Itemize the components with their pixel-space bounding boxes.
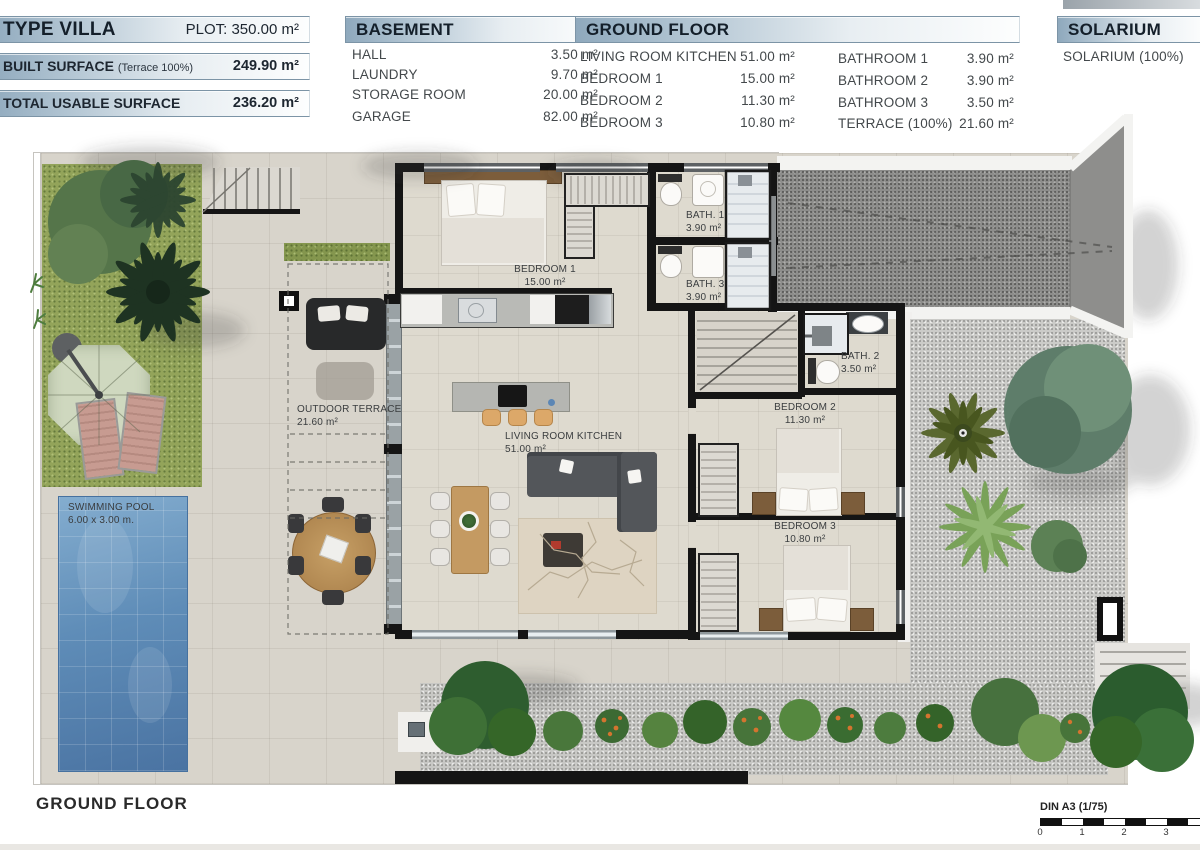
- patio-chair: [322, 497, 344, 512]
- basement-header-bar: BASEMENT: [345, 16, 603, 43]
- window-north-1: [424, 163, 540, 172]
- room-label-pool: SWIMMING POOL6.00 x 3.00 m.: [68, 502, 155, 527]
- room-label-terrace: OUTDOOR TERRACE21.60 m²: [297, 404, 402, 429]
- bath2-sink: [852, 315, 884, 333]
- ground-floor-title: GROUND FLOOR: [586, 17, 729, 42]
- patio-chair: [322, 590, 344, 605]
- slider-post-bottom: [384, 624, 402, 634]
- ground-floor-row: BATHROOM 23.90 m²: [838, 73, 1014, 93]
- coffee-table: [543, 533, 583, 567]
- solarium-row: SOLARIUM (100%): [1063, 49, 1200, 69]
- dining-chair: [430, 548, 450, 566]
- room-label-living: LIVING ROOM KITCHEN51.00 m²: [505, 431, 622, 456]
- solarium-title: SOLARIUM: [1068, 17, 1161, 42]
- plot-value: PLOT: 350.00 m²: [186, 17, 299, 42]
- dining-chair: [490, 548, 510, 566]
- terrace-window-symbol: [279, 291, 299, 311]
- glass-door-living-2: [528, 630, 616, 639]
- ground-floor-row: TERRACE (100%)21.60 m²: [838, 116, 1014, 136]
- slider-post-mid: [384, 444, 402, 454]
- dining-chair: [490, 492, 510, 510]
- wall-baths-south: [647, 303, 905, 311]
- sofa-pillow: [627, 469, 642, 484]
- wall-west-upper: [395, 163, 403, 303]
- scale-tick: 3: [1160, 827, 1172, 838]
- scale-tick: 1: [1076, 827, 1088, 838]
- bed3-blanket: [784, 546, 848, 590]
- wall-bath2-west: [798, 311, 805, 397]
- window-north-3: [684, 163, 768, 172]
- ground-floor-header-bar: GROUND FLOOR: [575, 16, 1020, 43]
- ground-floor-row: BATHROOM 33.50 m²: [838, 95, 1014, 115]
- usable-surface-label: TOTAL USABLE SURFACE: [3, 91, 180, 116]
- hedge-strip: [284, 243, 390, 261]
- usable-surface-value: 236.20 m²: [233, 91, 299, 116]
- garage-door: [769, 196, 776, 276]
- sink-bowl: [468, 303, 484, 318]
- patio-chair: [288, 514, 304, 533]
- cropped-top-bar: [1063, 0, 1200, 9]
- window-box-symbol: [1097, 597, 1123, 641]
- garden-wall: [395, 771, 748, 784]
- outdoor-rug: [316, 362, 374, 400]
- scale-bar: [1040, 818, 1200, 826]
- basement-row: LAUNDRY9.70 m²: [352, 67, 598, 87]
- kitchen-oven: [555, 295, 589, 324]
- driveway-curb-top: [777, 156, 1072, 170]
- driveway: [777, 170, 1070, 307]
- patio-chair: [355, 514, 371, 533]
- room-label-bath1: BATH. 13.90 m²: [686, 210, 724, 235]
- toilet-1: [660, 182, 682, 206]
- plan-frame-bottom: [33, 784, 1128, 785]
- scale-tick: 0: [1034, 827, 1046, 838]
- bed2-pillow: [808, 487, 839, 512]
- patio-chair: [288, 556, 304, 575]
- room-label-bath2: BATH. 23.50 m²: [841, 351, 879, 376]
- bed2-pillow: [778, 487, 809, 512]
- dining-chair: [430, 492, 450, 510]
- window-east-1: [896, 487, 905, 517]
- page-edge-strip: [0, 844, 1200, 850]
- bed2-blanket: [777, 429, 839, 473]
- scale-tick: 2: [1118, 827, 1130, 838]
- outdoor-cushion: [345, 305, 368, 322]
- toilet-3: [660, 254, 682, 278]
- bar-stool: [508, 409, 527, 426]
- utility-box: [408, 722, 425, 737]
- built-surface-label: BUILT SURFACE: [3, 58, 114, 74]
- basement-row: STORAGE ROOM20.00 m²: [352, 87, 598, 107]
- sofa-pillow: [559, 459, 574, 474]
- room-label-bedroom3: BEDROOM 310.80 m²: [745, 521, 865, 546]
- built-surface-value: 249.90 m²: [233, 54, 299, 79]
- bed1-pillow: [476, 183, 506, 217]
- type-villa-title: TYPE VILLA: [3, 17, 116, 42]
- plan-frame-left-outer: [33, 152, 34, 785]
- bed1-blanket: [442, 218, 544, 263]
- floor-title: GROUND FLOOR: [36, 794, 188, 814]
- nightstand: [759, 608, 783, 631]
- room-label-bedroom2: BEDROOM 211.30 m²: [745, 402, 865, 427]
- basement-row: HALL3.50 m²: [352, 47, 598, 67]
- wall-stair-west: [688, 311, 695, 397]
- nightstand: [752, 492, 776, 515]
- bath2-toilet-tank: [808, 358, 816, 384]
- window-north-2: [556, 163, 648, 172]
- nightstand: [841, 492, 865, 515]
- basement-row: GARAGE82.00 m²: [352, 109, 598, 129]
- table-plant: [462, 514, 476, 528]
- wall-bath2-south: [798, 388, 905, 395]
- dining-chair: [490, 520, 510, 538]
- patio-chair: [355, 556, 371, 575]
- dining-chair: [430, 520, 450, 538]
- induction-hob: [498, 385, 527, 407]
- glass-door-bedroom3: [700, 632, 788, 640]
- bath2-toilet: [816, 360, 840, 384]
- sink-1-bowl: [700, 181, 716, 197]
- island-faucet: [548, 399, 555, 406]
- bed3-pillow: [785, 597, 817, 622]
- wall-stair-south: [688, 392, 802, 399]
- bed3-pillow: [816, 597, 848, 623]
- ground-floor-row: BATHROOM 13.90 m²: [838, 51, 1014, 71]
- sliding-glass-door: [386, 298, 402, 634]
- sofa-chaise: [617, 452, 657, 532]
- ground-floor-row: BEDROOM 115.00 m²: [580, 71, 795, 91]
- wall-bath-divider: [647, 237, 778, 245]
- glass-door-living-1: [412, 630, 518, 639]
- room-label-bedroom1: BEDROOM 115.00 m²: [495, 264, 595, 289]
- window-east-2: [896, 590, 905, 624]
- basement-title: BASEMENT: [356, 17, 454, 42]
- stair-base-wall: [203, 209, 300, 214]
- hedge-bed: [420, 683, 1108, 775]
- outdoor-cushion: [317, 305, 340, 322]
- door-gap-bedroom3: [688, 522, 696, 548]
- usable-surface-bar: TOTAL USABLE SURFACE 236.20 m²: [0, 90, 310, 117]
- ground-floor-row: LIVING ROOM KITCHEN51.00 m²: [580, 49, 795, 69]
- sink-3: [692, 246, 724, 278]
- corner-steps: [1095, 643, 1190, 709]
- ground-floor-row: BEDROOM 310.80 m²: [580, 115, 795, 135]
- kitchen-fridge: [589, 295, 611, 324]
- solarium-header-bar: SOLARIUM: [1057, 16, 1200, 43]
- door-gap-bedroom2: [688, 408, 696, 434]
- living-rug: [518, 518, 657, 614]
- ground-floor-row: BEDROOM 211.30 m²: [580, 93, 795, 113]
- toilet-tank-3: [658, 246, 682, 254]
- coffee-table-item: [551, 541, 561, 549]
- built-surface-bar: BUILT SURFACE (Terrace 100%) 249.90 m²: [0, 53, 310, 80]
- plot-header-bar: TYPE VILLA PLOT: 350.00 m²: [0, 16, 310, 43]
- bar-stool: [482, 409, 501, 426]
- nightstand: [850, 608, 874, 631]
- bed1-pillow: [446, 183, 477, 217]
- swimming-pool: [58, 496, 188, 772]
- scale-label: DIN A3 (1/75): [1040, 801, 1107, 813]
- toilet-tank-1: [658, 174, 682, 182]
- bar-stool: [534, 409, 553, 426]
- floor-plan-sheet: TYPE VILLA PLOT: 350.00 m² BUILT SURFACE…: [0, 0, 1200, 850]
- kitchen-cabinet-white2: [530, 295, 555, 324]
- kitchen-cabinet-white: [402, 295, 442, 324]
- room-label-bath3: BATH. 33.90 m²: [686, 279, 724, 304]
- built-surface-note: (Terrace 100%): [118, 62, 193, 74]
